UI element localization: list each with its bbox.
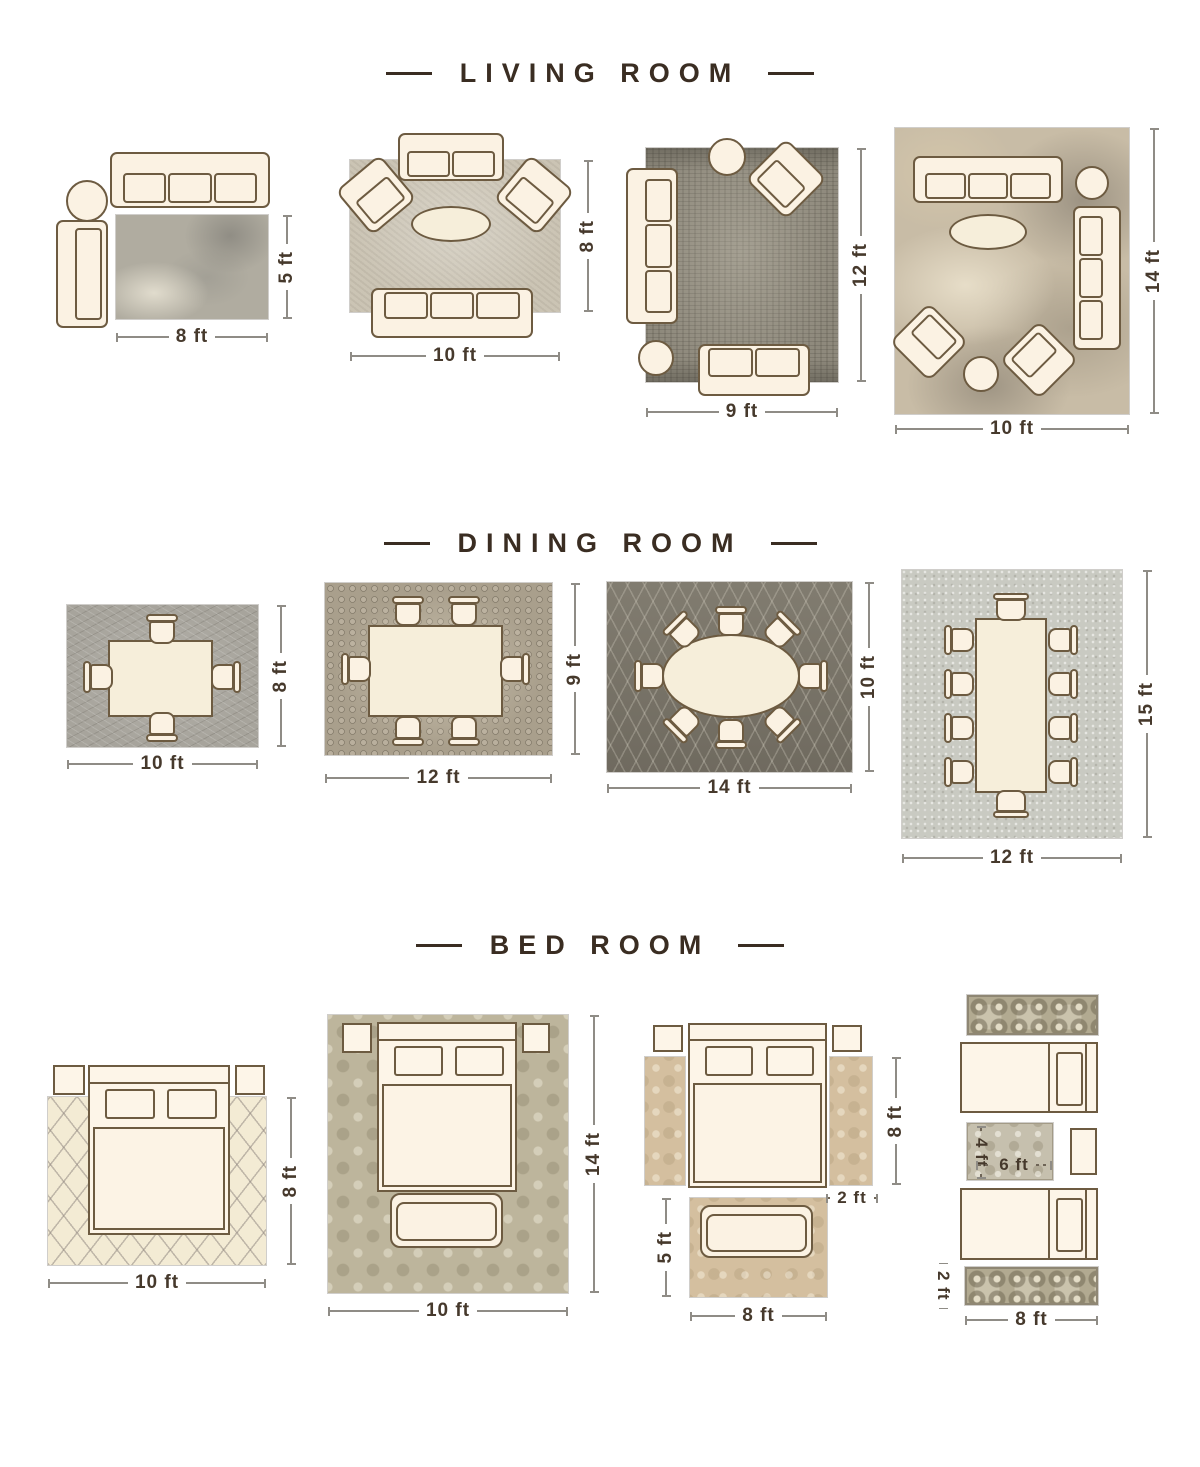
section-title-bed: BED ROOM (0, 930, 1200, 961)
sofa-cushion (708, 348, 753, 376)
dimension-line (468, 777, 550, 779)
dimension-height: 8 ft (270, 605, 292, 747)
dimension-line (978, 1164, 992, 1166)
dimension-line (860, 294, 862, 380)
dimension-label: 8 ft (578, 213, 598, 260)
sofa-cushion (384, 292, 428, 319)
sofa-cushion (476, 292, 520, 319)
bed-layout-10x14: 10 ft 14 ft (325, 1005, 615, 1330)
dining-chair (634, 660, 664, 692)
dining-chair (1048, 669, 1078, 699)
dimension-label: 2 ft (933, 1264, 953, 1308)
blanket (382, 1084, 513, 1187)
dimension-label: 15 ft (1137, 675, 1157, 733)
oval-coffee-table (411, 206, 491, 242)
dining-chair (944, 625, 974, 655)
dimension-height: 15 ft (1136, 570, 1158, 838)
section-title-text: DINING ROOM (458, 528, 743, 559)
dining-layout-14x10: 14 ft 10 ft (605, 578, 880, 798)
title-dash (386, 72, 432, 75)
dimension-line (895, 1144, 897, 1183)
sofa-three-seat-vertical (1073, 206, 1121, 350)
bed (688, 1023, 827, 1188)
dining-chair (448, 716, 480, 746)
living-layout-8x5: 8 ft 5 ft (48, 125, 308, 365)
headboard (379, 1024, 515, 1041)
headboard (1085, 1190, 1096, 1258)
sofa-seats (75, 228, 102, 320)
bed-layout-10x8: 10 ft 8 ft (42, 1055, 308, 1300)
sofa-seats (384, 292, 520, 319)
dining-chair (944, 669, 974, 699)
sofa-cushion (645, 179, 672, 222)
dimension-line (593, 1183, 595, 1291)
dining-table-long (975, 618, 1047, 793)
sofa-cushion (968, 173, 1009, 198)
oval-coffee-table (949, 214, 1027, 250)
dimension-line (967, 1319, 1008, 1321)
dining-layout-12x9: 12 ft 9 ft (322, 580, 590, 795)
sofa-cushion (168, 173, 211, 204)
bed-layout-runners: 8 ft 2 ft 5 ft 8 ft (645, 1015, 917, 1330)
dimension-width: 14 ft (607, 777, 852, 799)
dimension-line (1146, 572, 1148, 675)
runner-rug-right (830, 1057, 872, 1185)
dimension-line (759, 787, 850, 789)
dimension-runner-height: 2 ft (932, 1263, 954, 1309)
title-dash (768, 72, 814, 75)
dimension-label: 12 ft (409, 768, 467, 788)
dimension-label: 10 ft (859, 648, 879, 706)
dining-chair (1048, 713, 1078, 743)
dimension-line (1041, 857, 1120, 859)
dimension-line (593, 1017, 595, 1125)
dimension-label: 9 ft (565, 646, 585, 693)
dimension-height: 14 ft (583, 1015, 605, 1293)
dimension-label: 10 ft (426, 346, 484, 366)
dining-chair (392, 716, 424, 746)
dimension-label: 10 ft (983, 419, 1041, 439)
dimension-line (118, 336, 169, 338)
sofa-cushion (1079, 300, 1104, 340)
round-ottoman (638, 340, 674, 376)
dimension-line (574, 692, 576, 753)
dimension-width: 8 ft (116, 326, 268, 348)
headboard (690, 1025, 825, 1041)
blanket (693, 1083, 823, 1183)
dimension-line (874, 1197, 876, 1199)
sofa-seats (925, 173, 1051, 198)
runner-rug-left (645, 1057, 685, 1185)
dining-layout-10x8: 10 ft 8 ft (60, 598, 315, 788)
dimension-label: 8 ft (886, 1098, 906, 1145)
title-dash (416, 944, 462, 947)
loveseat-top (398, 133, 504, 181)
living-layout-9x12: 9 ft 12 ft (622, 138, 884, 433)
living-layout-10x14: 10 ft 14 ft (893, 118, 1188, 453)
dimension-line (186, 1282, 264, 1284)
pillow (766, 1046, 815, 1076)
sofa-seats (1079, 216, 1104, 339)
dining-chair (1048, 625, 1078, 655)
dimension-line (765, 411, 836, 413)
section-title-living: LIVING ROOM (0, 58, 1200, 89)
section-title-text: LIVING ROOM (460, 58, 741, 89)
dimension-line (286, 217, 288, 244)
dimension-label: 8 ft (271, 653, 291, 700)
dimension-width: 10 ft (48, 1272, 266, 1294)
dimension-label: 10 ft (419, 1301, 477, 1321)
sofa-three-seat-vertical (626, 168, 678, 324)
title-dash (384, 542, 430, 545)
dining-chair (993, 790, 1029, 818)
sofa-cushion (925, 173, 966, 198)
dimension-line (280, 699, 282, 745)
dimension-line (1055, 1319, 1096, 1321)
sofa-cushion (123, 173, 166, 204)
dining-chair-north (146, 614, 178, 644)
dimension-line (69, 763, 133, 765)
dimension-line (50, 1282, 128, 1284)
dimension-label: 5 ft (656, 1224, 676, 1271)
dimension-label: 14 ft (700, 778, 758, 798)
dining-chair (1048, 757, 1078, 787)
runner-rug-top (967, 995, 1098, 1035)
dimension-line (330, 1310, 419, 1312)
sofa-cushion (1079, 216, 1104, 256)
dimension-small-rug-width: 6 ft (976, 1154, 1052, 1176)
pillow (1056, 1052, 1083, 1106)
dimension-height: 5 ft (276, 215, 298, 319)
bed (88, 1065, 230, 1235)
pillow (705, 1046, 754, 1076)
dimension-line (895, 1059, 897, 1098)
dining-chair (392, 596, 424, 626)
dimension-label: 5 ft (277, 244, 297, 291)
section-title-text: BED ROOM (490, 930, 711, 961)
dimension-line (574, 585, 576, 646)
blanket (93, 1127, 226, 1230)
dimension-height: 10 ft (858, 582, 880, 772)
dimension-line (904, 857, 983, 859)
sofa-cushion (452, 151, 495, 177)
dimension-accent-width: 8 ft (690, 1305, 827, 1327)
small-rug-6x4: 4 ft 6 ft (967, 1123, 1053, 1180)
dining-table (108, 640, 213, 717)
dining-chair (944, 757, 974, 787)
dimension-line (860, 150, 862, 236)
dining-chair-east (211, 661, 241, 693)
loveseat-vertical (56, 220, 108, 328)
title-dash (771, 542, 817, 545)
dining-chair (341, 653, 371, 685)
bed (377, 1022, 517, 1192)
dining-chair (944, 713, 974, 743)
sofa-cushion (430, 292, 474, 319)
dimension-label: 9 ft (719, 402, 766, 422)
nightstand-left (653, 1025, 683, 1052)
dining-layout-12x15: 12 ft 15 ft (900, 565, 1170, 870)
sofa-cushion (1010, 173, 1051, 198)
sofa-cushion (645, 270, 672, 313)
dimension-line (648, 411, 719, 413)
rug-size-guide: LIVING ROOM 8 ft 5 ft 10 ft (0, 0, 1200, 1467)
round-side-table (708, 138, 746, 176)
dimension-line (286, 290, 288, 317)
sofa-cushion (755, 348, 800, 376)
pillow (394, 1046, 443, 1077)
dimension-line (290, 1204, 292, 1263)
dining-chair-south (146, 712, 178, 742)
dimension-line (692, 1315, 735, 1317)
dimension-height: 14 ft (1143, 128, 1165, 414)
headboard (1085, 1044, 1096, 1111)
dining-chair (500, 653, 530, 685)
dimension-label: 14 ft (1144, 242, 1164, 300)
nightstand-left (342, 1023, 372, 1053)
dimension-label: 8 ft (169, 327, 216, 347)
dimension-height: 12 ft (850, 148, 872, 382)
dimension-line (665, 1271, 667, 1295)
round-side-table (66, 180, 108, 222)
dimension-width: 10 ft (328, 1300, 568, 1322)
dimension-line (1041, 428, 1127, 430)
dimension-line (587, 259, 589, 310)
dimension-width: 12 ft (325, 767, 552, 789)
bench (390, 1193, 503, 1248)
headboard (90, 1067, 228, 1084)
dimension-width: 10 ft (350, 345, 560, 367)
sofa-seats (407, 151, 495, 177)
sofa-cushion (1079, 258, 1104, 298)
dimension-line (352, 355, 426, 357)
dimension-width: 10 ft (67, 753, 258, 775)
dimension-line (477, 1310, 566, 1312)
living-layout-10x8: 10 ft 8 ft (345, 128, 613, 373)
pillow (105, 1089, 155, 1120)
sofa-seats (708, 348, 801, 376)
nightstand-right (832, 1025, 862, 1052)
runner-rug-bottom (965, 1267, 1098, 1305)
dimension-label: 12 ft (983, 848, 1041, 868)
dimension-height: 8 ft (577, 160, 599, 312)
nightstand (1070, 1128, 1097, 1175)
blanket-fold (1048, 1190, 1050, 1258)
loveseat-bottom (698, 344, 810, 396)
dining-chair-west (83, 661, 113, 693)
blanket-fold (1048, 1044, 1050, 1111)
dimension-label: 2 ft (830, 1188, 874, 1208)
dimension-label: 8 ft (281, 1158, 301, 1205)
sofa-cushion (645, 224, 672, 267)
nightstand-right (235, 1065, 265, 1095)
bed-layout-twin: 4 ft 6 ft 2 ft 8 ft (930, 992, 1185, 1337)
dimension-label: 8 ft (1008, 1310, 1055, 1330)
sofa-cushion (407, 151, 450, 177)
sofa-three-seat (110, 152, 270, 208)
dimension-height: 9 ft (564, 583, 586, 755)
dining-chair (798, 660, 828, 692)
dimension-accent-height: 5 ft (655, 1198, 677, 1297)
dimension-line (280, 607, 282, 653)
dimension-line (665, 1200, 667, 1224)
dimension-line (587, 162, 589, 213)
dining-chair (993, 593, 1029, 621)
dimension-runner-width: 2 ft (826, 1187, 878, 1209)
pillow (167, 1089, 217, 1120)
dimension-line (868, 706, 870, 770)
dimension-height: 8 ft (280, 1097, 302, 1265)
rug-8x5 (116, 215, 268, 319)
dimension-label: 6 ft (992, 1155, 1036, 1175)
nightstand-left (53, 1065, 85, 1095)
sofa-three-seat (371, 288, 533, 338)
title-dash (738, 944, 784, 947)
sofa-seats (645, 179, 672, 313)
section-title-dining: DINING ROOM (0, 528, 1200, 559)
dining-chair (715, 606, 747, 636)
dimension-label: 10 ft (128, 1273, 186, 1293)
dimension-line (192, 763, 256, 765)
nightstand-right (522, 1023, 550, 1053)
dimension-width: 8 ft (965, 1309, 1098, 1331)
dimension-label: 10 ft (133, 754, 191, 774)
dimension-line (327, 777, 409, 779)
pillow (1056, 1198, 1083, 1252)
dimension-label: 14 ft (584, 1125, 604, 1183)
dimension-line (1146, 733, 1148, 836)
dimension-line (1153, 130, 1155, 242)
sofa-three-seat (913, 156, 1063, 203)
dining-chair (448, 596, 480, 626)
bench (700, 1205, 813, 1258)
dimension-line (782, 1315, 825, 1317)
dimension-line (1153, 300, 1155, 412)
dimension-runner-length: 8 ft (885, 1057, 907, 1185)
dining-chair (715, 719, 747, 749)
sofa-seats (123, 173, 257, 204)
dimension-label: 12 ft (851, 236, 871, 294)
dimension-line (290, 1099, 292, 1158)
round-ottoman (963, 356, 999, 392)
sofa-cushion (214, 173, 257, 204)
dimension-line (215, 336, 266, 338)
dimension-line (609, 787, 700, 789)
dimension-width: 9 ft (646, 401, 838, 423)
dining-table (368, 625, 503, 717)
dimension-line (484, 355, 558, 357)
round-side-table (1075, 166, 1109, 200)
dimension-label: 8 ft (735, 1306, 782, 1326)
dimension-line (868, 584, 870, 648)
pillow (455, 1046, 504, 1077)
dimension-line (897, 428, 983, 430)
twin-bed-bottom (960, 1188, 1098, 1260)
twin-bed-top (960, 1042, 1098, 1113)
dimension-width: 10 ft (895, 418, 1129, 440)
dimension-width: 12 ft (902, 847, 1122, 869)
sofa-cushion (75, 228, 102, 320)
dimension-line (1036, 1164, 1050, 1166)
